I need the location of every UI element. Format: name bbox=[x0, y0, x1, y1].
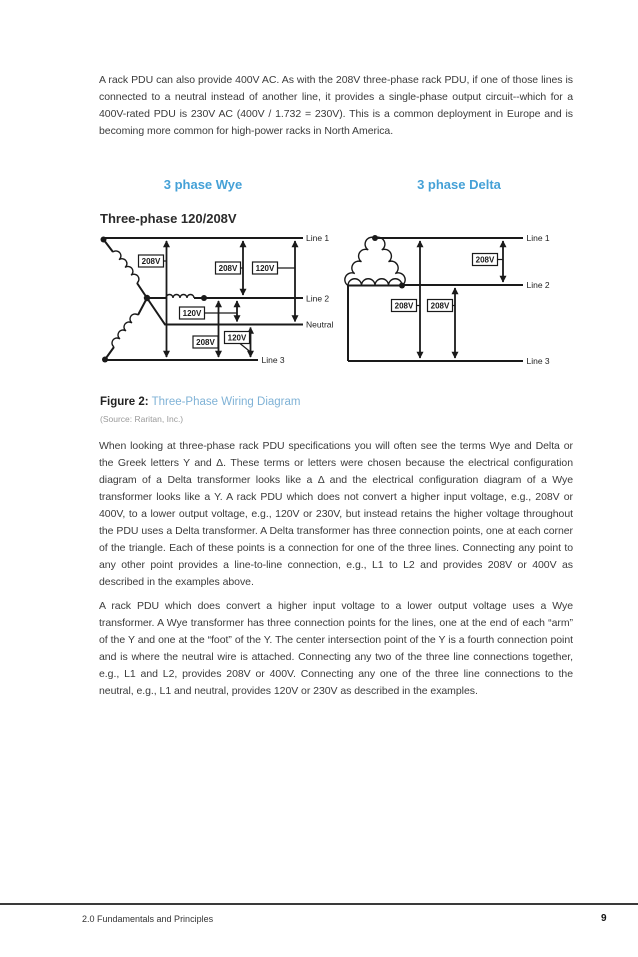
wye-line3-terminal-dot bbox=[102, 357, 108, 363]
document-page: A rack PDU can also provide 400V AC. As … bbox=[0, 0, 638, 957]
delta-line2-label: Line 2 bbox=[527, 280, 550, 290]
delta-line3-wire bbox=[348, 286, 523, 362]
wye-line2-terminal-dot bbox=[201, 295, 207, 301]
wye-diagram: 208V 208V 120V 120V 208V 120V Line 1 Lin… bbox=[101, 233, 334, 365]
figure-caption: Figure 2: Three-Phase Wiring Diagram bbox=[100, 396, 300, 408]
wye-winding-lower-coil bbox=[112, 314, 138, 347]
voltage-label: 208V bbox=[196, 338, 215, 347]
wye-line1-label: Line 1 bbox=[306, 233, 329, 243]
wye-winding-upper-coil bbox=[113, 251, 139, 283]
voltage-label: 208V bbox=[431, 302, 450, 311]
footer-page-number: 9 bbox=[601, 913, 607, 924]
figure-caption-label: Figure 2: bbox=[100, 396, 149, 408]
wye-explanation-paragraph: A rack PDU which does convert a higher i… bbox=[99, 598, 573, 700]
delta-line1-label: Line 1 bbox=[527, 233, 550, 243]
wye-winding-line2-coil bbox=[166, 295, 194, 299]
voltage-label: 208V bbox=[395, 302, 414, 311]
delta-winding-right-coil bbox=[375, 237, 405, 285]
footer-divider bbox=[0, 903, 638, 905]
voltage-label: 208V bbox=[142, 257, 161, 266]
voltage-label: 208V bbox=[219, 264, 238, 273]
delta-apex-dot bbox=[372, 235, 378, 241]
wye-center-dot bbox=[144, 295, 150, 301]
voltage-label: 120V bbox=[183, 309, 202, 318]
delta-explanation-paragraph: When looking at three-phase rack PDU spe… bbox=[99, 438, 573, 591]
wye-line2-label: Line 2 bbox=[306, 294, 329, 304]
delta-winding-left-coil bbox=[345, 237, 375, 285]
wye-neutral-wire bbox=[147, 298, 303, 325]
delta-line3-label: Line 3 bbox=[527, 356, 550, 366]
wye-callout-connector bbox=[240, 344, 251, 353]
voltage-label: 120V bbox=[256, 264, 275, 273]
wye-winding-upper-lead bbox=[104, 240, 148, 299]
figure-caption-title: Three-Phase Wiring Diagram bbox=[152, 396, 301, 408]
voltage-label: 120V bbox=[228, 334, 247, 343]
delta-right-corner-dot bbox=[399, 283, 405, 289]
wye-neutral-label: Neutral bbox=[306, 320, 334, 330]
delta-diagram: 208V 208V 208V Line 1 Line 2 Line 3 bbox=[345, 233, 550, 366]
voltage-label: 208V bbox=[476, 256, 495, 265]
wye-line3-label: Line 3 bbox=[262, 355, 285, 365]
footer-section-title: 2.0 Fundamentals and Principles bbox=[82, 914, 213, 924]
wye-line1-terminal-dot bbox=[101, 237, 107, 243]
delta-winding-bottom-coil bbox=[348, 279, 402, 286]
wye-winding-lower-lead bbox=[105, 298, 147, 360]
figure-source: (Source: Raritan, Inc.) bbox=[100, 414, 183, 424]
